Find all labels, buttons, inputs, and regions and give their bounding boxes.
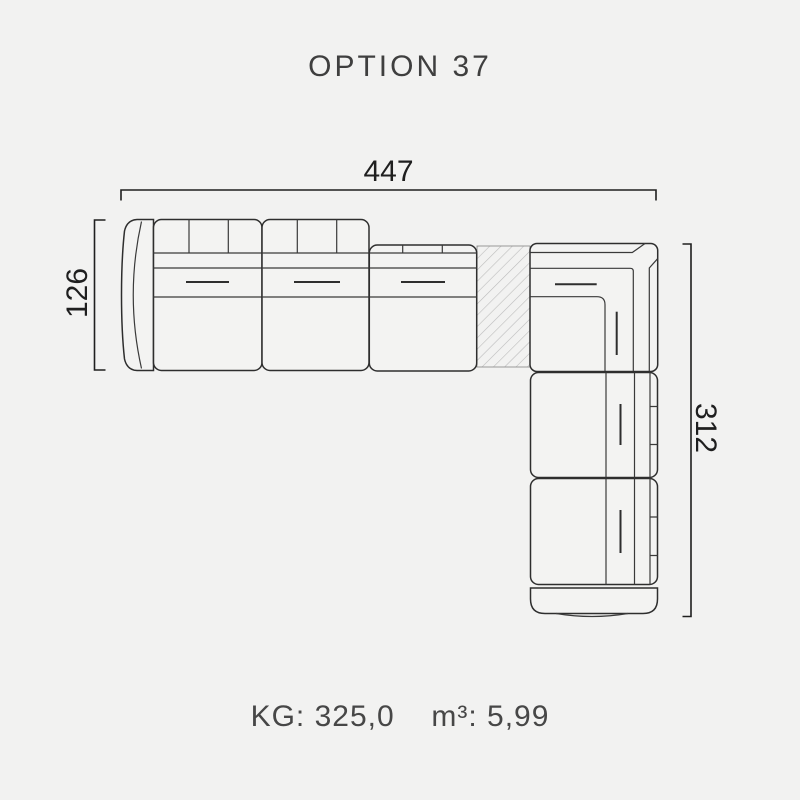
weight-label: KG: [251, 700, 306, 733]
left-arm [122, 220, 154, 371]
specs-footer: KG: 325,0 m³: 5,99 [0, 700, 800, 734]
dimension-right-label: 312 [689, 403, 722, 453]
seat-section-1 [154, 220, 263, 371]
vertical-section-1 [531, 373, 658, 478]
seat-section-3 [369, 245, 476, 371]
dimension-top-width: 447 [121, 155, 656, 201]
dimension-right-length: 312 [683, 244, 723, 617]
bottom-arm [531, 588, 658, 617]
corner-connector-hatch [477, 246, 530, 367]
diagram-canvas: OPTION 37 [0, 0, 800, 800]
dimension-top-label: 447 [363, 155, 413, 188]
dimension-left-label: 126 [61, 268, 94, 318]
seat-section-2 [262, 220, 369, 371]
volume-value: 5,99 [487, 700, 549, 733]
volume-label: m³: [431, 700, 477, 733]
vertical-section-2 [531, 479, 658, 585]
sofa-plan-drawing: 447 126 312 [0, 0, 800, 800]
weight-value: 325,0 [315, 700, 395, 733]
corner-section [530, 244, 658, 372]
dimension-left-depth: 126 [61, 220, 106, 370]
